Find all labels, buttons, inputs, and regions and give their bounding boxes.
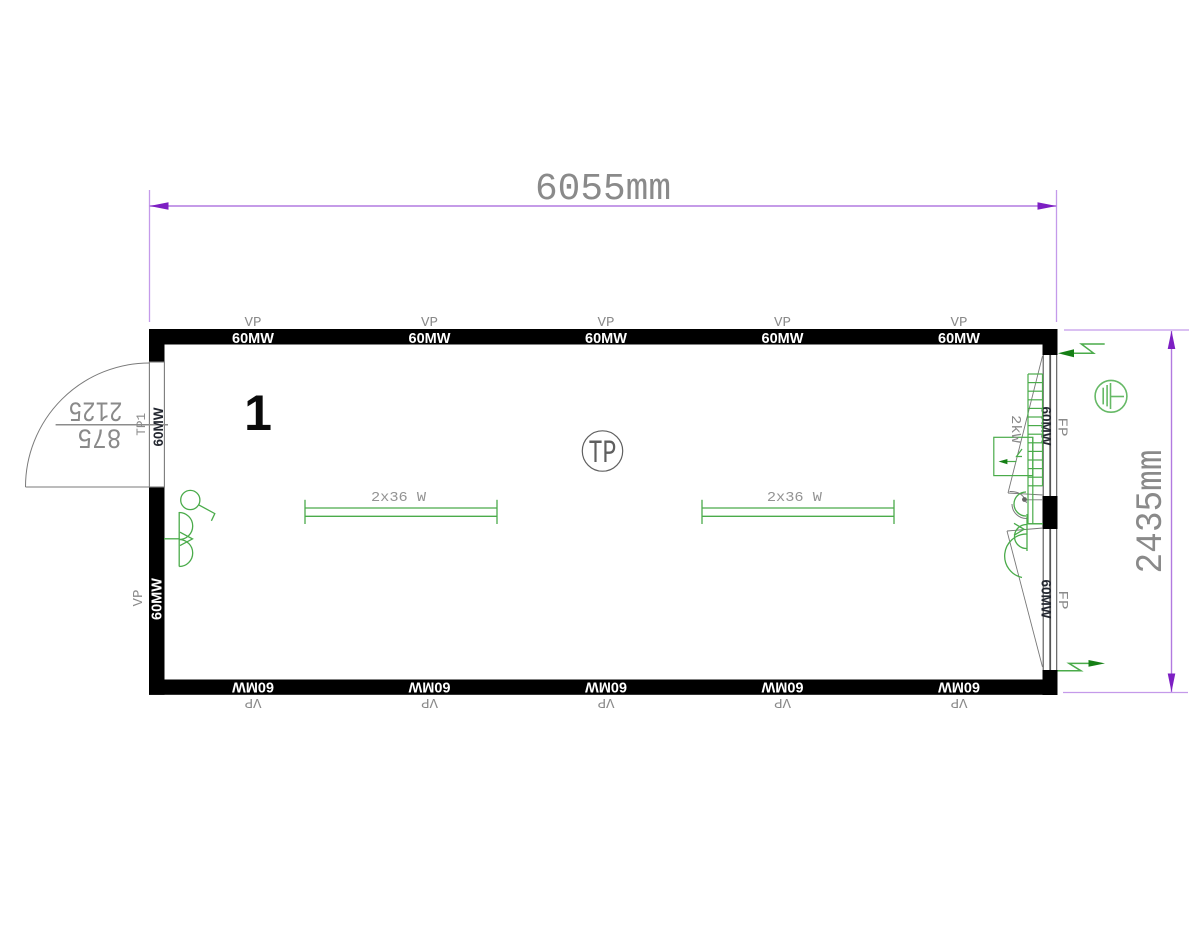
svg-text:VP: VP <box>598 694 615 710</box>
svg-text:VP: VP <box>598 315 615 331</box>
svg-text:TP: TP <box>589 435 617 472</box>
svg-text:60MW: 60MW <box>761 679 803 695</box>
svg-text:60MW: 60MW <box>1039 579 1054 618</box>
svg-text:60MW: 60MW <box>150 578 166 620</box>
svg-text:VP: VP <box>131 590 147 607</box>
svg-text:60MW: 60MW <box>938 331 980 347</box>
svg-text:VP: VP <box>245 694 262 710</box>
svg-text:FP: FP <box>1054 591 1069 610</box>
svg-text:60MW: 60MW <box>938 679 980 695</box>
svg-text:VP: VP <box>774 315 791 331</box>
svg-text:2435mm: 2435mm <box>1131 450 1173 574</box>
svg-text:VP: VP <box>774 694 791 710</box>
svg-text:60MW: 60MW <box>232 679 274 695</box>
svg-text:875: 875 <box>77 421 121 452</box>
svg-text:2x36 W: 2x36 W <box>767 491 823 506</box>
svg-text:2125: 2125 <box>69 394 123 425</box>
svg-text:60MW: 60MW <box>762 331 804 347</box>
svg-text:60MW: 60MW <box>585 679 627 695</box>
svg-text:2x36 W: 2x36 W <box>371 491 427 506</box>
svg-text:60MW: 60MW <box>151 407 166 446</box>
svg-text:60MW: 60MW <box>408 679 450 695</box>
svg-text:60MW: 60MW <box>409 331 451 347</box>
svg-text:TP1: TP1 <box>135 413 149 436</box>
svg-text:VP: VP <box>421 315 438 331</box>
svg-text:VP: VP <box>421 694 438 710</box>
svg-text:60MW: 60MW <box>585 331 627 347</box>
svg-text:FP: FP <box>1054 418 1069 437</box>
svg-text:6055mm: 6055mm <box>535 168 671 211</box>
svg-text:1: 1 <box>244 385 272 441</box>
svg-text:VP: VP <box>951 694 968 710</box>
svg-text:60MW: 60MW <box>232 331 274 347</box>
svg-text:VP: VP <box>245 315 262 331</box>
svg-text:2kW: 2kW <box>1007 415 1022 444</box>
svg-text:VP: VP <box>951 315 968 331</box>
